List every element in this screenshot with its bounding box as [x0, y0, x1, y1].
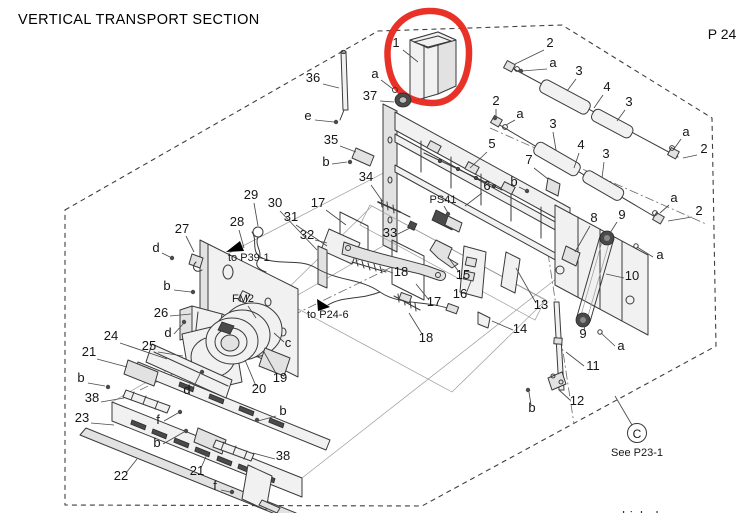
callout-a: a: [549, 55, 557, 70]
footer-partial-text: bizhub: [622, 508, 663, 513]
callout-36: 36: [306, 70, 320, 85]
callout-2: 2: [546, 35, 553, 50]
leader-line: [522, 69, 547, 71]
lever-15: [430, 240, 458, 268]
callout-1: 1: [392, 35, 399, 50]
callout-28: 28: [230, 214, 244, 229]
callout-27: 27: [175, 221, 189, 236]
leader-line: [97, 359, 127, 367]
callout-a: a: [617, 338, 625, 353]
leader-line: [162, 253, 170, 257]
callout-9: 9: [618, 207, 625, 222]
callout-3: 3: [625, 94, 632, 109]
callout-35: 35: [324, 132, 338, 147]
leader-line: [315, 120, 334, 122]
hook-14: [478, 312, 490, 328]
callout-33: 33: [383, 225, 397, 240]
leader-line: [601, 333, 615, 346]
callout-20: 20: [252, 381, 266, 396]
callout-31: 31: [284, 209, 298, 224]
callout-3: 3: [549, 116, 556, 131]
page-title: VERTICAL TRANSPORT SECTION: [18, 12, 260, 28]
leader-line: [515, 50, 544, 64]
leader-line: [326, 210, 346, 225]
callout-5: 5: [488, 136, 495, 151]
reference-circle-letter: C: [633, 427, 642, 441]
plate-13: [501, 252, 520, 293]
leader-line: [674, 139, 681, 149]
callout-b: b: [322, 154, 329, 169]
callout-24: 24: [104, 328, 118, 343]
callout-2: 2: [700, 141, 707, 156]
leader-line: [465, 193, 482, 206]
callout-6: 6: [483, 178, 490, 193]
leader-line: [340, 146, 356, 152]
leader-line: [174, 290, 191, 292]
leader-line: [380, 101, 394, 102]
page-number: P 24: [708, 26, 737, 42]
part-1-duct: [410, 32, 456, 102]
callout-4: 4: [577, 137, 584, 152]
callout-18: 18: [394, 264, 408, 279]
leader-line: [91, 423, 114, 425]
leader-line: [492, 321, 513, 330]
callout-21: 21: [190, 463, 204, 478]
callout-b: b: [279, 403, 286, 418]
rod-36: [340, 50, 348, 120]
callout-34: 34: [359, 169, 373, 184]
callout-a: a: [682, 124, 690, 139]
callout-b: b: [77, 370, 84, 385]
leader-line: [610, 222, 617, 233]
callout-2: 2: [695, 203, 702, 218]
callout-17: 17: [311, 195, 325, 210]
leader-line: [602, 162, 604, 178]
callout-9: 9: [579, 326, 586, 341]
callout-a: a: [670, 190, 678, 205]
leader-line: [534, 168, 548, 179]
callout-b: b: [153, 435, 160, 450]
callout-26: 26: [154, 305, 168, 320]
callout-d: d: [152, 240, 159, 255]
callout-38: 38: [276, 448, 290, 463]
callout-29: 29: [244, 187, 258, 202]
leader-line: [506, 120, 515, 125]
label-fm2: FM2: [232, 293, 254, 305]
callout-11: 11: [586, 358, 600, 373]
callout-f: f: [213, 478, 217, 493]
callout-c: c: [285, 335, 292, 350]
callout-e: e: [304, 108, 311, 123]
leader-line: [559, 390, 570, 400]
callout-37: 37: [363, 88, 377, 103]
callout-22: 22: [114, 468, 128, 483]
callout-2: 2: [492, 93, 499, 108]
callout-30: 30: [268, 195, 282, 210]
callout-b: b: [510, 174, 517, 189]
callout-d: d: [164, 325, 171, 340]
callout-25: 25: [142, 338, 156, 353]
label-to-p39: to P39-1: [228, 252, 270, 264]
callout-a: a: [371, 66, 379, 81]
leader-line: [332, 162, 347, 164]
strip-30: [318, 246, 327, 288]
leader-line: [371, 185, 383, 202]
callout-14: 14: [513, 321, 527, 336]
label-to-p24: to P24-6: [307, 309, 349, 321]
leader-line: [553, 132, 556, 150]
callout-15: 15: [456, 267, 470, 282]
leader-line: [617, 110, 625, 121]
callout-3: 3: [602, 146, 609, 161]
callout-d: d: [183, 382, 190, 397]
callout-7: 7: [525, 152, 532, 167]
leader-line: [660, 205, 669, 213]
leader-line: [398, 228, 410, 234]
callout-16: 16: [453, 286, 467, 301]
leader-line: [254, 203, 258, 226]
callout-10: 10: [625, 268, 639, 283]
bracket-7: [546, 178, 560, 196]
callout-12: 12: [570, 393, 584, 408]
callout-3: 3: [575, 63, 582, 78]
parts-diagram: VERTICAL TRANSPORT SECTION P 24: [0, 0, 750, 513]
callout-a: a: [516, 106, 524, 121]
callout-23: 23: [75, 410, 89, 425]
label-ps41: PS41: [430, 194, 457, 206]
callout-18: 18: [419, 330, 433, 345]
callout-b: b: [528, 400, 535, 415]
callout-a: a: [656, 247, 664, 262]
callout-b: b: [163, 278, 170, 293]
leader-line: [566, 352, 584, 366]
leader-line: [253, 453, 275, 459]
bracket-35: [352, 148, 374, 166]
callout-19: 19: [273, 370, 287, 385]
callout-13: 13: [534, 297, 548, 312]
leader-line: [668, 217, 692, 221]
callout-8: 8: [590, 210, 597, 225]
callout-17: 17: [427, 294, 441, 309]
callout-38: 38: [85, 390, 99, 405]
reference-note-text: See P23-1: [611, 447, 663, 459]
leader-line: [88, 383, 105, 386]
leader-line: [164, 413, 178, 421]
reference-note: C See P23-1: [611, 396, 663, 459]
callout-4: 4: [603, 79, 610, 94]
leader-line: [323, 84, 339, 88]
callout-f: f: [156, 412, 160, 427]
leader-line: [683, 155, 697, 158]
leader-line: [567, 79, 576, 91]
leader-line: [594, 95, 603, 108]
flow-arrow-p39: [226, 241, 244, 252]
leader-line: [186, 236, 194, 252]
roller-assembly-1: [504, 61, 680, 159]
callout-21: 21: [82, 344, 96, 359]
